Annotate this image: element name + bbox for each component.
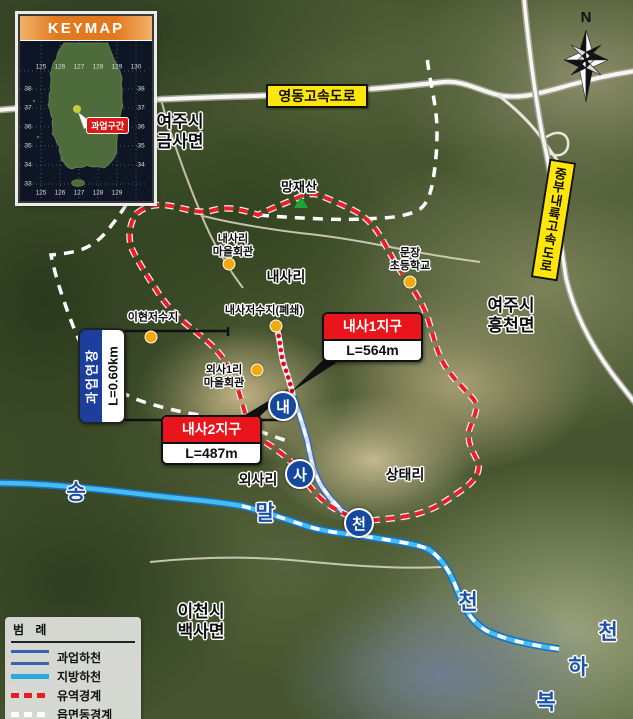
project-extent-length: L=0.60km <box>106 346 121 406</box>
grid-number: 33 <box>24 181 31 188</box>
stream-badge-cheon-char: 천 <box>352 513 366 534</box>
compass-north-letter: N <box>581 9 592 26</box>
legend-title: 범 례 <box>11 621 135 643</box>
stream-badge-sa: 사 <box>285 459 315 489</box>
grid-number: 126 <box>55 190 66 197</box>
stream-char-cheon-a: 천 <box>458 586 477 616</box>
stream-char-bok: 복 <box>536 686 555 716</box>
stream-badge-nae: 내 <box>268 391 298 421</box>
legend-label-watershed: 유역경계 <box>57 687 101 704</box>
legend-symbol-project-stream <box>11 650 49 665</box>
legend-label-project-stream: 과업하천 <box>57 649 101 666</box>
mountain-peak-icon <box>294 196 308 208</box>
grid-number: 34 <box>24 162 31 169</box>
district-callout-naesa1: 내사1지구 L=564m <box>322 312 423 362</box>
korea-landmass <box>48 43 123 169</box>
label-mangjaesan: 망재산 <box>281 179 317 194</box>
grid-number: 128 <box>93 64 104 71</box>
label-sangdaeri: 상태리 <box>386 467 425 484</box>
keymap-header: KEYMAP <box>20 16 152 41</box>
yeongdong-expressway-label: 영동고속도로 <box>266 84 368 108</box>
grid-number: 129 <box>112 190 123 197</box>
yeongdong-expressway-text: 영동고속도로 <box>278 86 355 106</box>
poi-dot-munjang-school <box>404 276 417 289</box>
region-label-icheon-baeksa: 이천시 백사면 <box>178 602 225 642</box>
map-canvas: 내 사 천 송 말 천 천 하 복 여주시 금사면 여주시 흥천면 이천시 백사… <box>0 0 633 719</box>
label-oesa1ri-hall: 외사1리 마을회관 <box>204 364 244 390</box>
stream-char-song: 송 <box>66 476 85 506</box>
legend-row-admin-boundary: 읍면동경계 <box>11 705 135 719</box>
legend-label-local-stream: 지방하천 <box>57 668 101 685</box>
region-label-yeoju-geumsa: 여주시 금사면 <box>157 112 204 152</box>
compass-rose: N <box>558 8 614 103</box>
project-section-stream <box>277 329 293 396</box>
grid-number: 35 <box>24 143 31 150</box>
keymap-site-dot <box>73 105 81 113</box>
stream-badge-cheon: 천 <box>344 508 374 538</box>
stream-char-cheon-b: 천 <box>598 616 617 646</box>
grid-number: 36 <box>24 124 31 131</box>
legend-label-admin-boundary: 읍면동경계 <box>57 706 112 719</box>
region-label-yeoju-heungcheon: 여주시 흥천면 <box>488 296 535 336</box>
district-naesa1-name: 내사1지구 <box>324 314 421 341</box>
keymap-map: 과업구간 125 126 127 128 129 130 38 37 36 35… <box>20 41 152 201</box>
grid-number: 34 <box>137 162 144 169</box>
grid-number: 36 <box>137 124 144 131</box>
district-naesa2-name: 내사2지구 <box>163 417 260 444</box>
legend-symbol-local-stream <box>11 674 49 679</box>
label-naesari: 내사리 <box>267 269 306 286</box>
project-extent-callout: 과업연장 L=0.60km <box>78 328 126 424</box>
legend-symbol-admin-boundary <box>11 712 49 717</box>
poi-dot-oesa1ri-hall <box>251 364 264 377</box>
grid-number: 125 <box>36 190 47 197</box>
keymap-inset: KEYMAP 과업구간 125 126 <box>18 14 154 203</box>
district-callout-naesa2: 내사2지구 L=487m <box>161 415 262 465</box>
label-ihyeon-reservoir: 이현저수지 <box>128 312 179 325</box>
keymap-site-tag: 과업구간 <box>86 117 129 134</box>
project-extent-title-panel: 과업연장 <box>80 330 102 422</box>
legend-row-local-stream: 지방하천 <box>11 667 135 686</box>
label-oesari: 외사리 <box>239 472 278 489</box>
poi-dot-naesa-reservoir <box>270 320 283 333</box>
district-naesa2-length: L=487m <box>163 444 260 463</box>
legend-row-project-stream: 과업하천 <box>11 648 135 667</box>
label-naesa-reservoir: 내사저수지(폐쇄) <box>225 305 303 318</box>
grid-number: 128 <box>93 190 104 197</box>
grid-number: 35 <box>137 143 144 150</box>
poi-dot-ihyeon-reservoir <box>145 331 158 344</box>
project-extent-title: 과업연장 <box>82 348 101 404</box>
label-munjang-school: 문장 초등학교 <box>390 247 430 273</box>
legend: 범 례 과업하천 지방하천 유역경계 읍면동경계 <box>5 617 141 719</box>
stream-char-mal: 말 <box>255 497 274 527</box>
stream-char-ha: 하 <box>568 651 587 681</box>
district-naesa1-length: L=564m <box>324 341 421 360</box>
poi-dot-naesari-hall <box>223 258 236 271</box>
label-naesari-hall: 내사리 마을회관 <box>213 233 253 259</box>
grid-number: 127 <box>74 190 85 197</box>
stream-badge-sa-char: 사 <box>293 464 307 485</box>
grid-number: 37 <box>24 105 31 112</box>
legend-symbol-watershed <box>11 693 49 698</box>
grid-number: 38 <box>24 86 31 93</box>
grid-number: 38 <box>137 86 144 93</box>
grid-number: 126 <box>55 64 66 71</box>
grid-number: 125 <box>36 64 47 71</box>
grid-number: 129 <box>112 64 123 71</box>
grid-number: 127 <box>74 64 85 71</box>
legend-row-watershed: 유역경계 <box>11 686 135 705</box>
grid-number: 37 <box>137 105 144 112</box>
project-extent-length-panel: L=0.60km <box>102 330 124 422</box>
stream-badge-nae-char: 내 <box>276 396 290 417</box>
grid-number: 130 <box>131 64 142 71</box>
